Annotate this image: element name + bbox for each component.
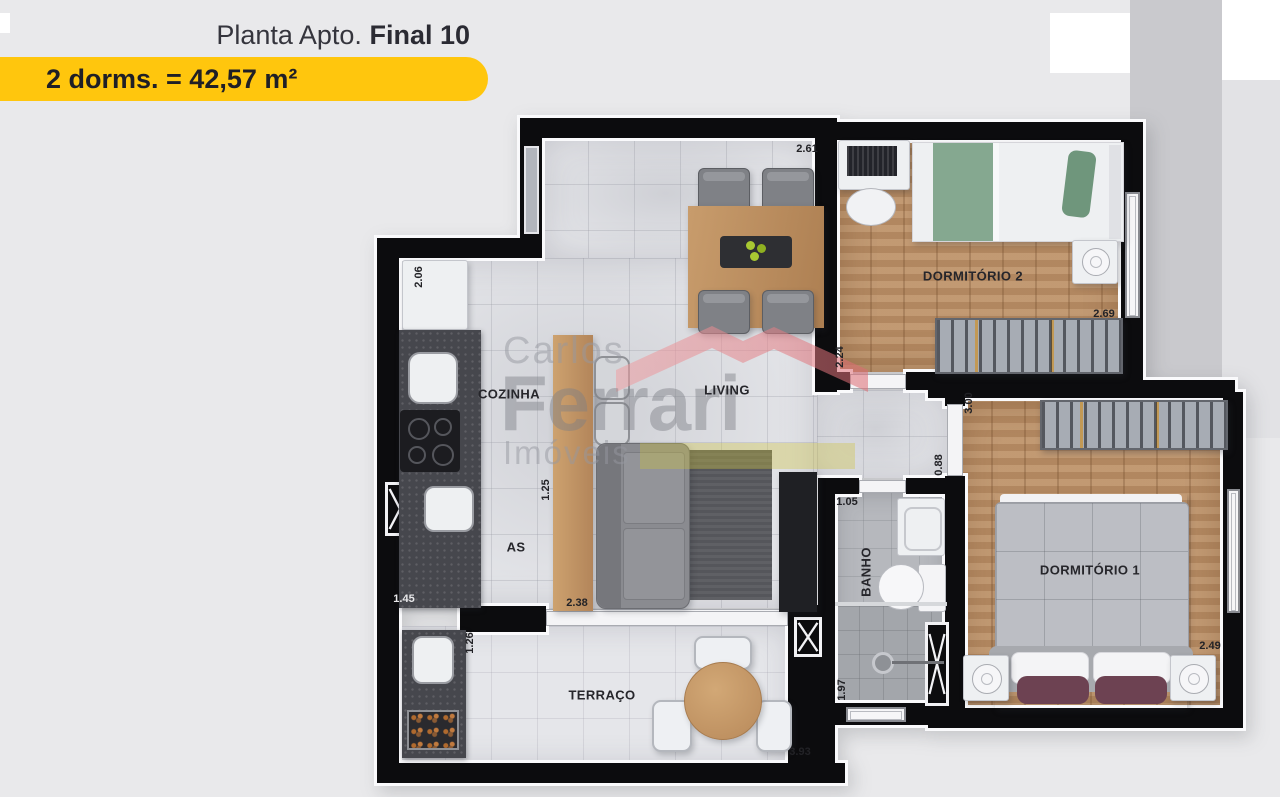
room-label-bedroom2: DORMITÓRIO 2 [923, 269, 1023, 284]
wall [377, 763, 845, 783]
room-label-living: LIVING [704, 383, 750, 398]
bedroom1-window [1227, 489, 1240, 613]
terrace-table [684, 662, 762, 740]
burner [432, 444, 454, 466]
barbecue-grill [407, 710, 459, 750]
room-label-terrace: TERRAÇO [568, 688, 635, 703]
headboard [1109, 145, 1121, 239]
fruit [757, 244, 766, 253]
wall [460, 606, 546, 632]
entry-door-panel [524, 146, 539, 234]
watermark-line2: Ferrari [500, 364, 740, 442]
dimension-label: 1.25 [540, 479, 552, 500]
dimension-label: 1.05 [836, 496, 857, 508]
bedroom1-door-threshold [947, 404, 963, 476]
terrace-sliding-door [546, 609, 788, 626]
laundry-sink [424, 486, 474, 532]
burner [408, 418, 430, 440]
watermark-line3: Imóveis [503, 436, 631, 469]
dimension-label: 3.93 [789, 746, 810, 758]
dimension-label: 0.88 [933, 454, 945, 475]
room-label-kitchen: COZINHA [478, 387, 540, 402]
wardrobe-rack [1040, 400, 1228, 450]
shower-arm [892, 661, 944, 664]
laptop [847, 146, 897, 176]
terrace-sink [412, 636, 454, 684]
fruit [750, 252, 759, 261]
room-label-bathroom: BANHO [859, 547, 874, 597]
desk [838, 140, 910, 190]
duct-shaft-icon [794, 617, 822, 657]
nightstand [1170, 655, 1216, 701]
dimension-label: 2.69 [1093, 308, 1114, 320]
dimension-label: 3.00 [963, 392, 975, 413]
dimension-label: 2.38 [566, 597, 587, 609]
accent-pillow [1095, 676, 1167, 704]
dimension-label: 2.24 [834, 346, 846, 367]
burner [434, 418, 452, 436]
shower-drain [872, 652, 894, 674]
floorplan-page: Planta Apto. Final 10 2 dorms. = 42,57 m… [0, 0, 1280, 797]
dimension-label: 1.45 [393, 593, 414, 605]
refrigerator [402, 260, 468, 330]
wardrobe-rack [935, 318, 1123, 374]
shower-glass [835, 602, 947, 606]
cooktop [400, 410, 460, 472]
table-lamp [1179, 664, 1209, 694]
wall [817, 122, 1143, 140]
rug [688, 450, 772, 600]
wall [928, 708, 1243, 728]
dimension-label: 2.06 [413, 266, 425, 287]
shower-head [872, 652, 947, 674]
room-label-bedroom1: DORMITÓRIO 1 [1040, 563, 1140, 578]
bathroom-door-threshold [859, 480, 906, 493]
nightstand [963, 655, 1009, 701]
table-lamp [1082, 248, 1110, 276]
pillow [1061, 150, 1097, 219]
double-bed [995, 494, 1187, 708]
blanket [933, 143, 993, 241]
basin [904, 507, 942, 551]
wall [906, 478, 965, 494]
blanket-fold [993, 143, 999, 241]
dimension-label: 1.26 [464, 632, 476, 653]
sofa-cushion [623, 528, 685, 600]
floorplan: Carlos Ferrari Imóveis COZINHA LIVING AS… [0, 0, 1280, 797]
accent-pillow [1017, 676, 1089, 704]
serving-tray [720, 236, 792, 268]
nightstand [1072, 240, 1118, 284]
dimension-label: 2.49 [1199, 640, 1220, 652]
single-bed [912, 142, 1124, 242]
desk-chair [846, 188, 896, 226]
wall [377, 238, 542, 258]
burner [408, 446, 426, 464]
vanity-sink [897, 498, 945, 556]
dimension-label: 2.61 [796, 143, 817, 155]
fruit [746, 241, 755, 250]
room-label-service: AS [507, 540, 526, 555]
dimension-label: 1.97 [836, 679, 848, 700]
wall [818, 478, 859, 494]
wall [520, 118, 837, 138]
table-lamp [972, 664, 1002, 694]
bathroom-window [846, 707, 906, 722]
bedroom2-window [1125, 192, 1140, 318]
tv-console [779, 472, 817, 612]
kitchen-sink [408, 352, 458, 404]
